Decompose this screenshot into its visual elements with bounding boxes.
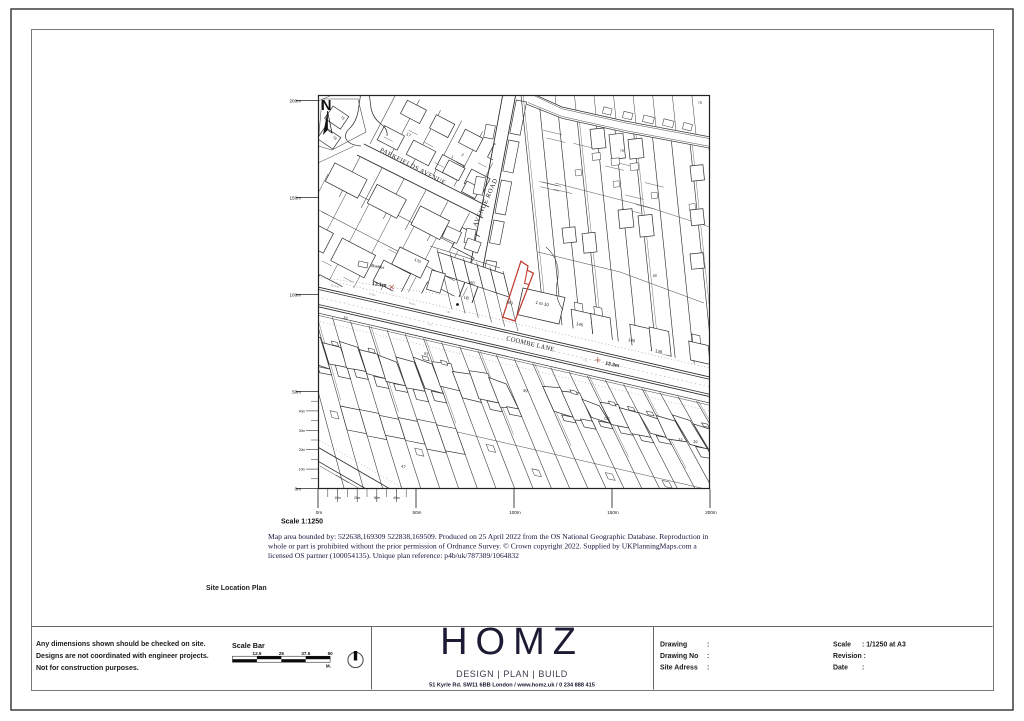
- svg-text:Drawing No: Drawing No: [660, 653, 698, 660]
- svg-text:150m: 150m: [607, 510, 619, 515]
- svg-text:10m: 10m: [299, 468, 306, 472]
- svg-text:licensed OS partner (100054135: licensed OS partner (100054135). Unique …: [268, 551, 519, 560]
- svg-text:Site Location Plan: Site Location Plan: [206, 585, 267, 592]
- svg-text:100m: 100m: [509, 510, 521, 515]
- svg-text:50m: 50m: [292, 390, 301, 395]
- svg-text:75: 75: [698, 101, 703, 105]
- svg-text::: :: [862, 665, 864, 672]
- svg-text:200m: 200m: [290, 99, 302, 104]
- svg-text:DESIGN | PLAN | BUILD: DESIGN | PLAN | BUILD: [456, 669, 568, 679]
- svg-text:37.5: 37.5: [301, 651, 310, 656]
- svg-text:HOMZ: HOMZ: [440, 621, 584, 663]
- svg-text:10m: 10m: [334, 496, 341, 500]
- svg-text::: :: [707, 665, 709, 672]
- svg-text:50m: 50m: [413, 510, 422, 515]
- svg-text:Map area bounded by: 522638,16: Map area bounded by: 522638,169309 52283…: [268, 532, 709, 541]
- svg-text:Scale 1:1250: Scale 1:1250: [281, 519, 323, 526]
- svg-text:50: 50: [328, 651, 334, 656]
- svg-text:30m: 30m: [299, 429, 306, 433]
- svg-text:0m: 0m: [295, 487, 302, 492]
- svg-text::: :: [707, 642, 709, 649]
- svg-text:whole or part is prohibited wi: whole or part is prohibited without the …: [268, 542, 697, 551]
- svg-text:Scale: Scale: [833, 642, 851, 649]
- svg-text:150m: 150m: [290, 196, 302, 201]
- svg-text:Designs are not coordinated wi: Designs are not coordinated with enginee…: [36, 653, 209, 660]
- svg-text:: 1/1250 at A3: : 1/1250 at A3: [862, 642, 906, 649]
- svg-text:Not for construction purposes.: Not for construction purposes.: [36, 665, 139, 672]
- svg-text:20m: 20m: [299, 448, 306, 452]
- svg-text:12.5: 12.5: [253, 651, 262, 656]
- svg-text:Site Adress: Site Adress: [660, 665, 698, 672]
- svg-text:Drawing: Drawing: [660, 642, 687, 649]
- svg-text:30m: 30m: [374, 496, 381, 500]
- svg-text:76: 76: [620, 149, 625, 153]
- svg-text:Any dimensions shown should be: Any dimensions shown should be checked o…: [36, 641, 206, 648]
- svg-text:20m: 20m: [354, 496, 361, 500]
- svg-text:80: 80: [653, 274, 658, 278]
- svg-text:100m: 100m: [290, 293, 302, 298]
- svg-text:N: N: [321, 98, 331, 114]
- svg-text:200m: 200m: [705, 510, 717, 515]
- svg-text:Scale Bar: Scale Bar: [232, 641, 265, 650]
- svg-text:25: 25: [279, 651, 285, 656]
- svg-text:0m: 0m: [316, 510, 323, 515]
- svg-text::: :: [707, 653, 709, 660]
- svg-text:51 Kyrle Rd. SW11 6BB London /: 51 Kyrle Rd. SW11 6BB London / www.homz.…: [429, 683, 595, 689]
- svg-text:Revision :: Revision :: [833, 653, 866, 660]
- svg-text:M.: M.: [326, 664, 331, 669]
- svg-text:40m: 40m: [393, 496, 400, 500]
- svg-text:Date: Date: [833, 665, 848, 672]
- svg-text:40m: 40m: [299, 409, 306, 413]
